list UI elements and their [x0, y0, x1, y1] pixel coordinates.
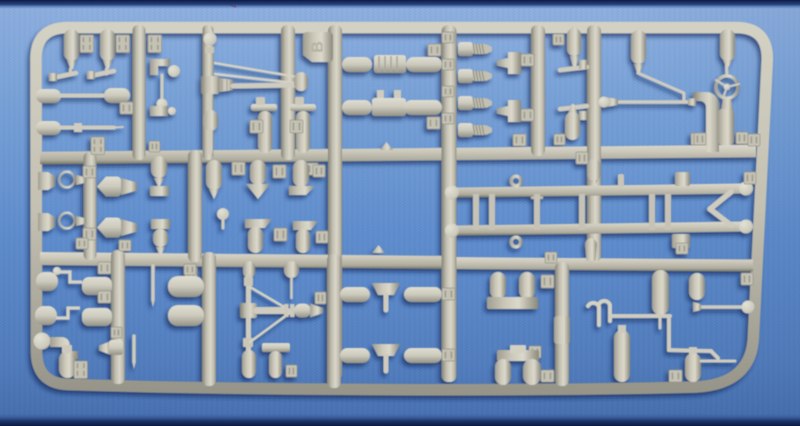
- svg-text:B: B: [310, 41, 327, 53]
